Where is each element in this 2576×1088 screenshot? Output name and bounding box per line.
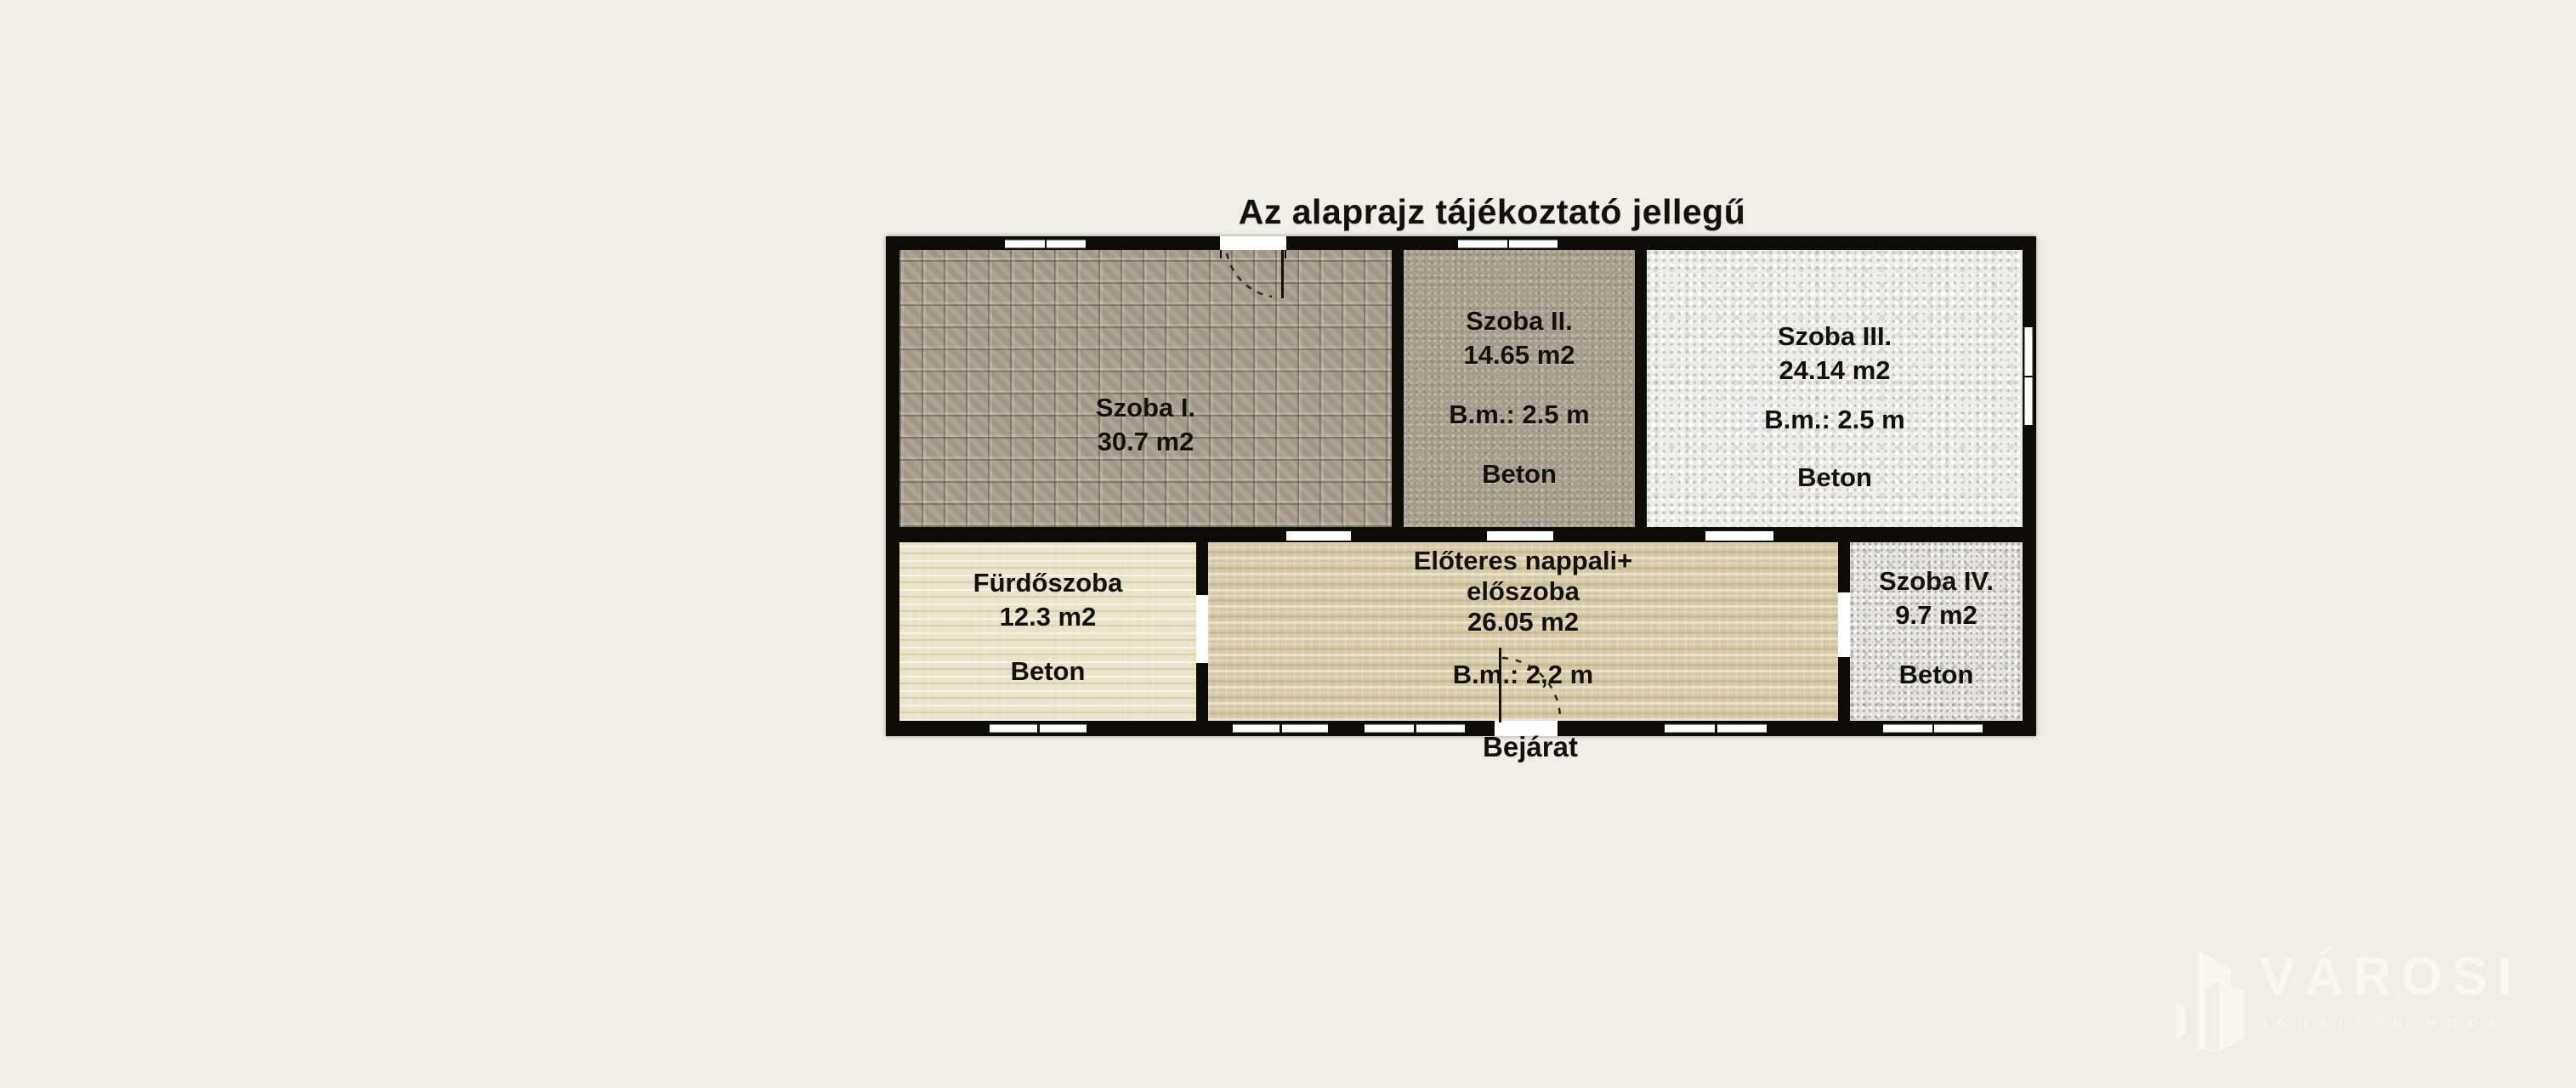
floorplan: Szoba I. 30.7 m2 Szoba II. 14.65 m2 B.m.… <box>886 236 2036 736</box>
disclaimer-title: Az alaprajz tájékoztató jellegű <box>1067 192 1917 232</box>
logo-subtitle-text: INGATLANIRODA <box>2263 1017 2508 1032</box>
entrance-label: Bejárat <box>1445 731 1615 763</box>
door-swing-overlay <box>886 236 2036 736</box>
floorplan-image: Az alaprajz tájékoztató jellegű Szoba I.… <box>0 0 2576 1088</box>
door-swing-arc-szoba-i <box>1227 253 1272 297</box>
building-icon <box>2175 947 2246 1054</box>
agency-logo: VÁROSI INGATLANIRODA <box>2175 943 2532 1062</box>
logo-brand-text: VÁROSI <box>2260 949 2522 1005</box>
door-swing-arc-entrance <box>1502 658 1560 717</box>
